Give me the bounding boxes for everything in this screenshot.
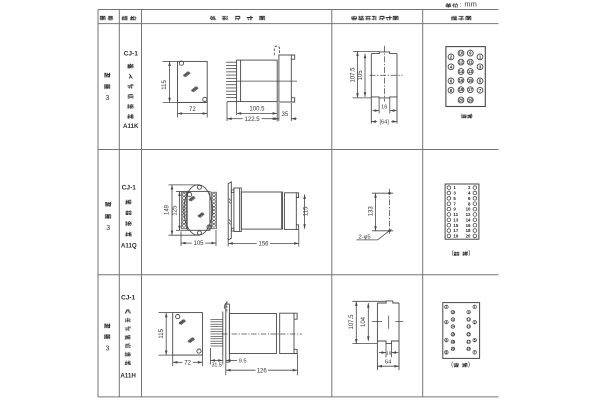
svg-text:149: 149 [165, 204, 171, 215]
svg-text:3: 3 [105, 346, 109, 353]
svg-text:15: 15 [468, 78, 473, 83]
svg-text:15: 15 [453, 223, 458, 228]
svg-text:16: 16 [386, 351, 392, 356]
svg-text:15: 15 [467, 333, 471, 337]
svg-text:133: 133 [368, 206, 374, 217]
svg-text:17: 17 [453, 228, 458, 233]
svg-text:mm: mm [464, 0, 476, 9]
svg-text:6: 6 [446, 338, 448, 342]
svg-text:16: 16 [459, 78, 464, 83]
svg-text:[64]: [64] [379, 120, 389, 126]
svg-text:105: 105 [358, 70, 364, 81]
svg-text:3: 3 [474, 320, 476, 324]
svg-text:12: 12 [451, 318, 455, 322]
svg-text:CJ-1: CJ-1 [122, 185, 137, 192]
svg-text:CJ-1: CJ-1 [121, 295, 136, 302]
svg-text:10: 10 [466, 207, 471, 212]
svg-text:35: 35 [282, 112, 289, 118]
svg-text:122.5: 122.5 [245, 117, 261, 123]
svg-text:17: 17 [468, 87, 473, 92]
svg-text:11: 11 [453, 212, 458, 217]
svg-text:3: 3 [105, 95, 109, 102]
svg-text:3: 3 [106, 225, 110, 232]
svg-text:115: 115 [159, 328, 165, 338]
svg-text:10: 10 [459, 51, 464, 56]
svg-text:20: 20 [459, 98, 464, 103]
svg-text:5: 5 [474, 338, 476, 342]
svg-text:2: 2 [446, 305, 448, 309]
svg-text:14: 14 [451, 325, 455, 329]
svg-text:156: 156 [258, 242, 269, 248]
svg-text:11: 11 [467, 318, 471, 322]
svg-text:16: 16 [381, 104, 387, 110]
svg-text:14: 14 [466, 217, 471, 222]
svg-text:12: 12 [459, 60, 464, 65]
svg-text:7: 7 [474, 351, 476, 355]
svg-text:19: 19 [453, 234, 458, 239]
svg-text:16: 16 [451, 333, 455, 337]
svg-text:115: 115 [303, 206, 309, 216]
svg-text:): ) [468, 361, 470, 368]
svg-text:A11K: A11K [123, 123, 139, 130]
svg-text:4: 4 [446, 320, 448, 324]
svg-text:2-φ5: 2-φ5 [359, 235, 371, 241]
svg-text:72: 72 [189, 107, 196, 113]
svg-text:9.5: 9.5 [239, 358, 247, 364]
svg-text:12: 12 [466, 212, 471, 217]
svg-text:104: 104 [361, 316, 367, 327]
svg-text:13: 13 [453, 217, 458, 222]
svg-text:CJ-1: CJ-1 [124, 51, 139, 58]
svg-text:20: 20 [451, 347, 455, 351]
svg-text:115: 115 [162, 80, 168, 90]
svg-text:16: 16 [466, 223, 471, 228]
svg-text:107.5: 107.5 [350, 67, 356, 83]
svg-text:100.5: 100.5 [249, 107, 265, 113]
svg-text::: : [459, 2, 461, 9]
svg-text:105: 105 [193, 241, 204, 247]
svg-text:19: 19 [468, 98, 473, 103]
svg-text:13: 13 [468, 69, 473, 74]
svg-text:18: 18 [459, 87, 464, 92]
svg-text:18: 18 [451, 340, 455, 344]
svg-text:13: 13 [467, 325, 471, 329]
svg-text:17: 17 [467, 340, 471, 344]
svg-text:64: 64 [385, 360, 392, 366]
svg-text:31.5: 31.5 [211, 363, 222, 369]
svg-text:A11H: A11H [120, 372, 136, 379]
svg-text:11: 11 [468, 60, 473, 65]
svg-text:10: 10 [451, 310, 455, 314]
svg-text:107.5: 107.5 [349, 314, 355, 330]
svg-text:19: 19 [467, 347, 471, 351]
svg-text:72: 72 [184, 360, 191, 366]
svg-text:126: 126 [257, 368, 268, 374]
svg-text:1: 1 [474, 305, 476, 309]
svg-text:A11Q: A11Q [121, 242, 137, 249]
svg-text:20: 20 [466, 234, 471, 239]
svg-text:18: 18 [466, 228, 471, 233]
svg-text:): ) [468, 250, 470, 257]
svg-text:9: 9 [468, 310, 470, 314]
svg-text:125: 125 [172, 205, 178, 216]
svg-text:8: 8 [446, 351, 448, 355]
svg-text:14: 14 [459, 69, 464, 74]
